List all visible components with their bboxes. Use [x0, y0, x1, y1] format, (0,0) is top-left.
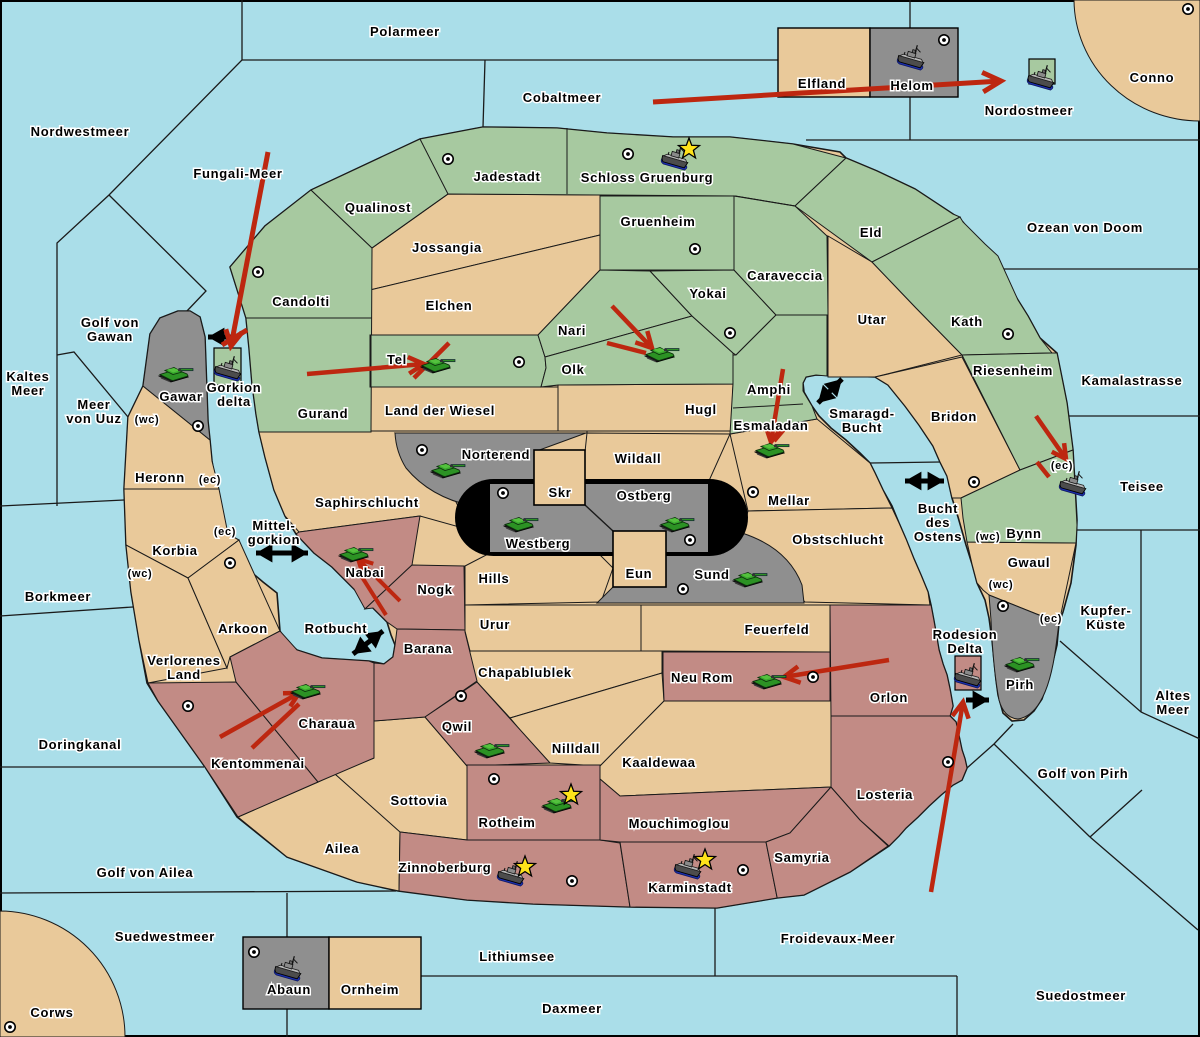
svg-text:Utar: Utar — [858, 312, 887, 327]
svg-text:Kentommenai: Kentommenai — [211, 756, 305, 771]
svg-text:Nilldall: Nilldall — [552, 741, 600, 756]
svg-text:Froidevaux-Meer: Froidevaux-Meer — [781, 931, 896, 946]
svg-text:Charaua: Charaua — [299, 716, 356, 731]
svg-text:Orlon: Orlon — [870, 690, 908, 705]
svg-text:(wc): (wc) — [135, 414, 160, 426]
svg-text:Qualinost: Qualinost — [345, 200, 411, 215]
svg-text:Eld: Eld — [860, 225, 882, 240]
svg-text:Elchen: Elchen — [426, 298, 473, 313]
svg-text:Sund: Sund — [694, 567, 729, 582]
svg-text:Teisee: Teisee — [1120, 479, 1164, 494]
svg-text:Riesenheim: Riesenheim — [973, 363, 1053, 378]
svg-text:Golf vonGawan: Golf vonGawan — [81, 315, 139, 344]
svg-text:Hills: Hills — [479, 571, 510, 586]
svg-text:Jossangia: Jossangia — [412, 240, 482, 255]
svg-text:Bynn: Bynn — [1006, 526, 1041, 541]
svg-text:Urur: Urur — [480, 617, 510, 632]
svg-text:Conno: Conno — [1130, 70, 1175, 85]
svg-text:Gawar: Gawar — [159, 389, 202, 404]
svg-text:Land der Wiesel: Land der Wiesel — [385, 403, 495, 418]
svg-text:Bridon: Bridon — [931, 409, 977, 424]
svg-text:(wc): (wc) — [976, 531, 1001, 543]
svg-text:Elfland: Elfland — [798, 76, 846, 91]
svg-text:KaltesMeer: KaltesMeer — [6, 369, 49, 398]
svg-text:Doringkanal: Doringkanal — [39, 737, 122, 752]
svg-text:Rotbucht: Rotbucht — [305, 621, 368, 636]
svg-text:Ostberg: Ostberg — [617, 488, 672, 503]
svg-text:Gwaul: Gwaul — [1008, 555, 1051, 570]
svg-text:Eun: Eun — [626, 566, 653, 581]
svg-text:Samyria: Samyria — [774, 850, 830, 865]
svg-text:Daxmeer: Daxmeer — [542, 1001, 602, 1016]
svg-text:Lithiumsee: Lithiumsee — [479, 949, 555, 964]
svg-text:Saphirschlucht: Saphirschlucht — [315, 495, 419, 510]
svg-text:Hugl: Hugl — [685, 402, 717, 417]
svg-text:Wildall: Wildall — [615, 451, 662, 466]
svg-text:Ailea: Ailea — [325, 841, 360, 856]
svg-text:Candolti: Candolti — [272, 294, 330, 309]
svg-text:Cobaltmeer: Cobaltmeer — [523, 90, 602, 105]
svg-text:Pirh: Pirh — [1006, 677, 1034, 692]
svg-text:Tel: Tel — [387, 352, 407, 367]
svg-text:Barana: Barana — [404, 641, 452, 656]
svg-text:Westberg: Westberg — [506, 536, 571, 551]
svg-text:Amphi: Amphi — [747, 382, 791, 397]
svg-text:Qwil: Qwil — [442, 719, 472, 734]
svg-text:Helom: Helom — [890, 78, 933, 93]
svg-text:Jadestadt: Jadestadt — [474, 169, 541, 184]
svg-text:Nordostmeer: Nordostmeer — [985, 103, 1074, 118]
svg-text:Mouchimoglou: Mouchimoglou — [629, 816, 730, 831]
svg-text:Karminstadt: Karminstadt — [648, 880, 732, 895]
svg-text:Norterend: Norterend — [462, 447, 530, 462]
svg-text:Abaun: Abaun — [267, 982, 311, 997]
svg-text:Zinnoberburg: Zinnoberburg — [399, 860, 492, 875]
svg-text:Nogk: Nogk — [417, 582, 452, 597]
svg-text:Suedwestmeer: Suedwestmeer — [115, 929, 215, 944]
svg-text:Chapablublek: Chapablublek — [478, 665, 572, 680]
svg-text:Kaaldewaa: Kaaldewaa — [622, 755, 696, 770]
svg-text:(ec): (ec) — [199, 474, 221, 486]
svg-text:Kupfer-Küste: Kupfer-Küste — [1080, 603, 1131, 632]
svg-text:Ozean von Doom: Ozean von Doom — [1027, 220, 1143, 235]
svg-text:Kath: Kath — [951, 314, 983, 329]
svg-text:Korbia: Korbia — [152, 543, 197, 558]
svg-text:Ornheim: Ornheim — [341, 982, 399, 997]
svg-text:Golf von Pirh: Golf von Pirh — [1038, 766, 1129, 781]
svg-text:Arkoon: Arkoon — [218, 621, 268, 636]
svg-text:Gruenheim: Gruenheim — [621, 214, 696, 229]
svg-text:Yokai: Yokai — [689, 286, 726, 301]
svg-text:Esmaladan: Esmaladan — [734, 418, 809, 433]
svg-text:Obstschlucht: Obstschlucht — [792, 532, 883, 547]
svg-text:Sottovia: Sottovia — [391, 793, 448, 808]
svg-text:Feuerfeld: Feuerfeld — [745, 622, 810, 637]
svg-text:(ec): (ec) — [1051, 460, 1073, 472]
svg-text:(wc): (wc) — [128, 568, 153, 580]
svg-text:Kamalastrasse: Kamalastrasse — [1082, 373, 1183, 388]
svg-text:Nari: Nari — [558, 323, 586, 338]
svg-text:Mittel-gorkion: Mittel-gorkion — [248, 518, 301, 547]
svg-text:Mellar: Mellar — [768, 493, 810, 508]
svg-text:Borkmeer: Borkmeer — [25, 589, 91, 604]
svg-text:Neu Rom: Neu Rom — [671, 670, 733, 685]
svg-text:(ec): (ec) — [1040, 613, 1062, 625]
svg-text:Nordwestmeer: Nordwestmeer — [31, 124, 130, 139]
svg-text:Skr: Skr — [548, 485, 571, 500]
svg-text:Fungali-Meer: Fungali-Meer — [193, 166, 282, 181]
svg-text:Corws: Corws — [30, 1005, 73, 1020]
svg-text:Polarmeer: Polarmeer — [370, 24, 440, 39]
svg-text:Gurand: Gurand — [298, 406, 348, 421]
svg-text:Rotheim: Rotheim — [479, 815, 536, 830]
svg-text:Suedostmeer: Suedostmeer — [1036, 988, 1126, 1003]
svg-text:Golf von Ailea: Golf von Ailea — [97, 865, 194, 880]
svg-text:Losteria: Losteria — [857, 787, 913, 802]
svg-text:AltesMeer: AltesMeer — [1155, 688, 1190, 717]
svg-text:(wc): (wc) — [989, 579, 1014, 591]
svg-text:Olk: Olk — [561, 362, 584, 377]
svg-text:Caraveccia: Caraveccia — [747, 268, 823, 283]
svg-text:Nabai: Nabai — [346, 565, 385, 580]
svg-text:Schloss Gruenburg: Schloss Gruenburg — [581, 170, 714, 185]
svg-text:(ec): (ec) — [214, 526, 236, 538]
svg-text:Heronn: Heronn — [135, 470, 185, 485]
